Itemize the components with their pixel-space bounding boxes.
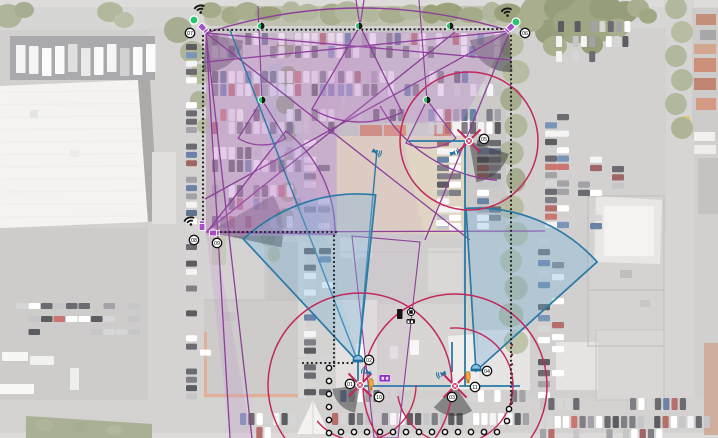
svg-text:06: 06 [522,31,528,37]
svg-text:05: 05 [481,137,487,143]
svg-text:08: 08 [191,238,197,244]
svg-text:02: 02 [366,358,372,364]
svg-text:10: 10 [376,395,382,401]
svg-text:07: 07 [187,31,193,37]
svg-text:04: 04 [484,369,490,375]
svg-text:09: 09 [214,241,220,247]
svg-text:11: 11 [472,385,478,391]
svg-text:03: 03 [449,395,455,401]
svg-text:01: 01 [347,382,353,388]
